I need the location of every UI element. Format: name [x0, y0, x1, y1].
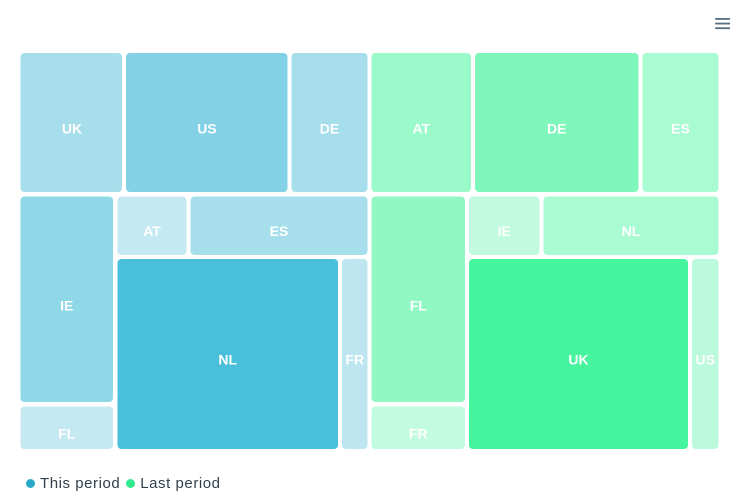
svg-text:NL: NL: [218, 352, 237, 368]
svg-text:UK: UK: [62, 121, 82, 137]
svg-text:DE: DE: [547, 121, 566, 137]
svg-text:AT: AT: [143, 223, 161, 239]
svg-text:US: US: [696, 352, 715, 368]
svg-text:NL: NL: [622, 223, 641, 239]
svg-text:FR: FR: [409, 426, 428, 442]
svg-text:FR: FR: [345, 352, 364, 368]
svg-text:UK: UK: [568, 352, 588, 368]
svg-text:IE: IE: [498, 223, 511, 239]
svg-text:FL: FL: [410, 298, 428, 314]
svg-text:IE: IE: [60, 298, 73, 314]
svg-text:ES: ES: [270, 223, 289, 239]
svg-text:ES: ES: [671, 121, 690, 137]
svg-text:US: US: [197, 121, 216, 137]
svg-text:AT: AT: [412, 121, 430, 137]
svg-text:FL: FL: [58, 426, 76, 442]
svg-text:DE: DE: [320, 121, 339, 137]
